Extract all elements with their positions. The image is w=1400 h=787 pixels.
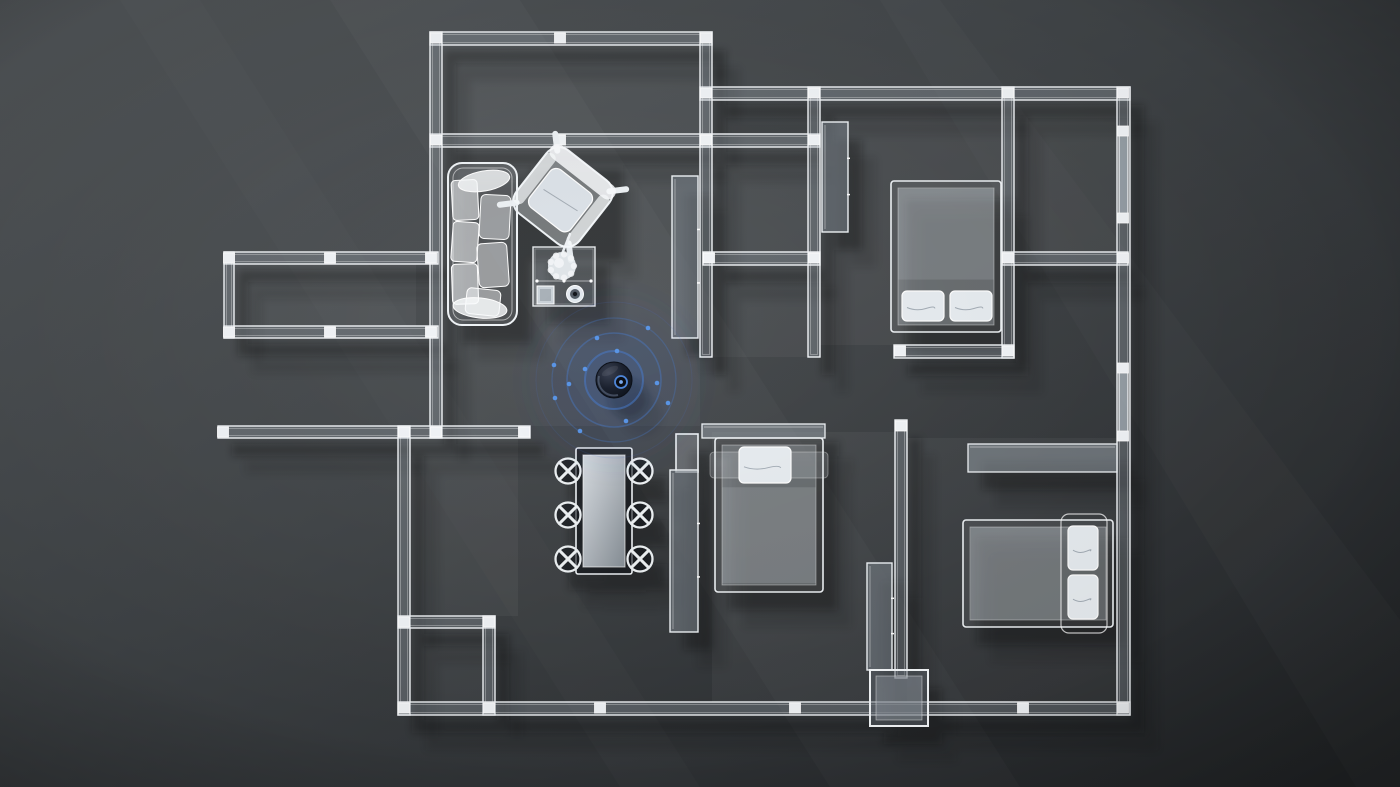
floorplan-canvas bbox=[0, 0, 1400, 787]
floorplan-svg bbox=[0, 0, 1400, 787]
vignette bbox=[0, 0, 1400, 787]
